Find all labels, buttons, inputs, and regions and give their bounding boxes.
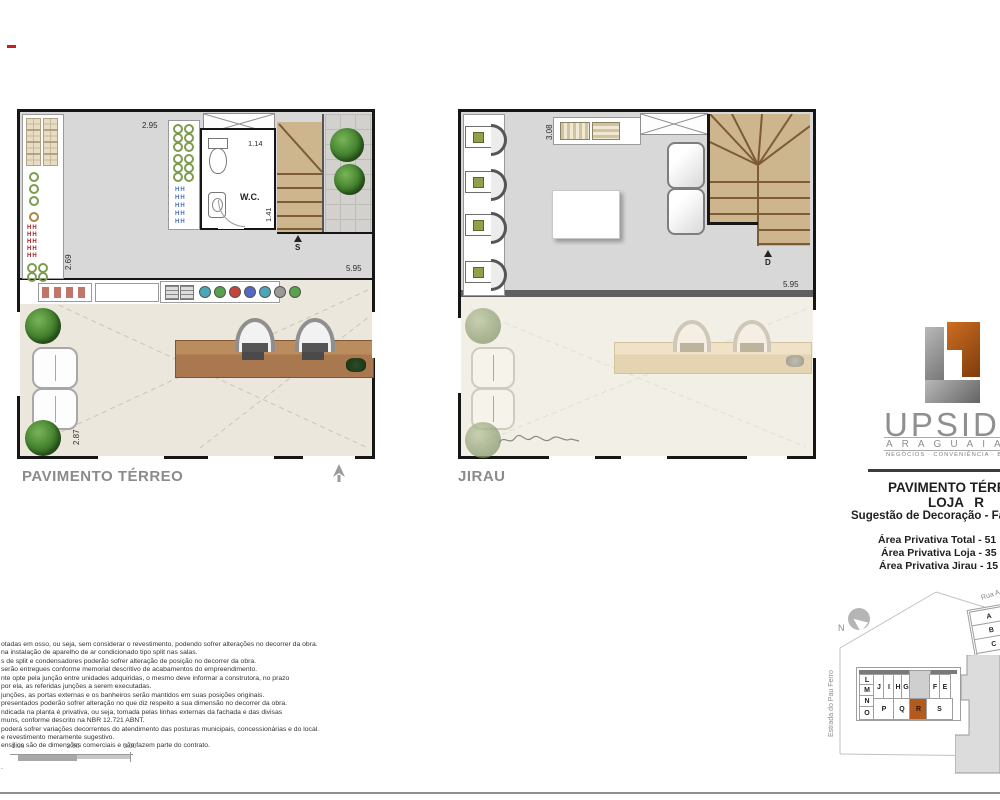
map-unit: P	[873, 698, 895, 720]
dim-right: 5.95	[346, 264, 362, 273]
storefront-opening	[303, 456, 355, 459]
tray-icon	[592, 122, 620, 140]
street-left-label: Estrada do Pau Ferro	[828, 670, 835, 737]
stove-burners	[42, 287, 88, 298]
stair-treads	[277, 122, 322, 232]
staircase-up	[277, 122, 322, 232]
box-icon	[26, 130, 41, 142]
red-registration-mark	[7, 45, 16, 48]
floorplan-jirau: 3.08 D 5.95	[458, 109, 816, 459]
disclaimer-line: na instalação de aparelho de ar condicio…	[1, 649, 561, 657]
countertop-item	[242, 352, 264, 360]
storage-shelf: HH HH HH HH HH	[22, 114, 64, 279]
scale-bar-segment	[77, 755, 130, 759]
shelf-mark-icon: HH	[27, 225, 38, 231]
disclaimer-line: junções, as portas externas e os banheir…	[1, 692, 561, 700]
counter-plant-icon	[346, 358, 366, 372]
glass-icon	[38, 272, 48, 282]
table-below	[471, 347, 515, 389]
stair-treads	[710, 114, 810, 246]
stair-terrace-wall	[322, 114, 324, 232]
dim-wc-width: 1.14	[248, 139, 263, 148]
glass-icon	[173, 172, 183, 182]
wall-unit-icon	[465, 261, 493, 283]
map-anchor-building	[955, 655, 1000, 775]
glass-icon	[29, 172, 39, 182]
unit-letter: Q	[899, 706, 904, 713]
glass-icon	[173, 142, 183, 152]
disclaimer-block: otadas em osso, ou seja, sem considerar …	[1, 641, 561, 751]
unit-letter: B	[988, 626, 994, 634]
center-table	[552, 190, 620, 239]
box-icon	[26, 118, 41, 130]
unit-letter: J	[877, 684, 881, 691]
box-icon	[43, 118, 58, 130]
tree-below-icon	[465, 308, 501, 344]
floorplan-pavimento-terreo: HH HH HH HH HH 2.95 HH HH HH HH HH	[17, 109, 375, 459]
armchair-icon	[667, 188, 705, 235]
logo-rule	[884, 450, 1000, 451]
shelf-mark-icon: HH	[175, 211, 186, 217]
disclaimer-line: otadas em osso, ou seja, sem considerar …	[1, 641, 561, 649]
shelf-mark-icon: HH	[175, 219, 186, 225]
stool-seat	[302, 343, 328, 352]
unit-letter: I	[888, 684, 890, 691]
stool-seat	[680, 343, 704, 352]
tree-icon	[25, 308, 61, 344]
unit-letter: E	[943, 684, 948, 691]
footer-rule	[0, 792, 1000, 794]
tree-below-icon	[465, 422, 501, 458]
box-icon	[43, 142, 58, 154]
opening	[747, 456, 787, 459]
disclaimer-footnote: .	[1, 764, 3, 772]
info-unit: LOJA R	[928, 495, 984, 510]
void-hatch	[640, 113, 708, 135]
logo-mark-horizontal	[925, 380, 980, 403]
tray-icon	[560, 122, 590, 140]
map-north-icon	[848, 608, 870, 630]
unit-letter: L	[865, 677, 869, 684]
logo-rule	[884, 437, 1000, 438]
box-icon	[43, 130, 58, 142]
map-void-cell	[909, 670, 931, 700]
opening	[549, 456, 595, 459]
wall-unit-icon	[465, 214, 493, 236]
north-arrow-icon	[330, 463, 348, 483]
box-icon	[43, 154, 58, 166]
dim-wc-depth: 1.41	[264, 207, 273, 222]
unit-knob	[473, 267, 484, 278]
bar-shelf: HH HH HH HH HH	[168, 120, 200, 230]
unit-letter: G	[903, 684, 908, 691]
disclaimer-line: ndicada na planta é privativa, ou seja, …	[1, 709, 561, 717]
north-needle	[850, 614, 868, 630]
decor-below-icon	[786, 355, 804, 367]
disclaimer-line: presentados poderão sofrer alteração no …	[1, 700, 561, 708]
shelf-mark-icon: HH	[175, 203, 186, 209]
glass-icon	[184, 172, 194, 182]
door-swing-arc	[218, 200, 245, 227]
stool-seat	[740, 343, 764, 352]
scale-label-3: 3.00	[124, 743, 137, 750]
stool-seat	[242, 343, 268, 352]
wc-room: W.C. 1.14 1.41	[200, 128, 276, 230]
dim-top: 2.95	[142, 121, 158, 130]
stair-bottom-wall	[707, 222, 758, 225]
dim-right: 5.95	[783, 280, 799, 289]
wall-unit-icon	[465, 171, 493, 193]
logo-mark-notch	[947, 350, 962, 377]
terrace-wall	[277, 232, 372, 234]
side-opening	[17, 312, 20, 396]
map-unit: S	[926, 698, 953, 720]
armchair-icon	[667, 142, 705, 189]
stair-up-arrow-icon	[294, 235, 302, 242]
box-icon	[26, 142, 41, 154]
storefront-opening	[208, 456, 274, 459]
lounge-table	[32, 347, 78, 389]
mezzanine-edge	[461, 290, 813, 297]
glass-icon	[184, 142, 194, 152]
glass-icon	[29, 196, 39, 206]
info-subtitle: Sugestão de Decoração - Fa	[851, 510, 1000, 522]
disclaimer-line: s de split e condensadores poderão sofre…	[1, 658, 561, 666]
signature-watermark	[497, 432, 581, 448]
disclaimer-line: muns, conforme descrito na NBR 12.721 AB…	[1, 717, 561, 725]
disclaimer-line: nte opte pela junção entre unidades adqu…	[1, 675, 561, 683]
unit-letter: C	[991, 640, 997, 648]
glass-icon	[29, 184, 39, 194]
map-building-strip: L M N O J I H G F E P Q R S	[856, 667, 961, 721]
side-opening	[372, 312, 375, 358]
unit-letter: R	[916, 706, 921, 713]
map-north-label: N	[838, 623, 845, 633]
stacked-boxes-icon	[165, 285, 179, 300]
unit-letter: A	[986, 612, 992, 620]
plates-counter	[160, 281, 280, 303]
shelf-mark-icon: HH	[27, 232, 38, 238]
map-unit: E	[939, 674, 951, 700]
plan-terreo-title: PAVIMENTO TÉRREO	[22, 468, 183, 485]
tree-icon	[25, 420, 61, 456]
countertop-item	[302, 352, 324, 360]
info-area-jirau: Área Privativa Jirau - 15	[879, 560, 998, 572]
unit-letter: H	[895, 684, 900, 691]
tree-icon	[330, 128, 364, 162]
wall-unit-icon	[465, 126, 493, 148]
scale-label-2: 2.00	[67, 743, 80, 750]
stacked-boxes-icon	[180, 285, 194, 300]
shelf-mark-icon: HH	[27, 246, 38, 252]
disclaimer-line: e revestimento meramente sugestivo.	[1, 734, 561, 742]
logo-tagline: NEGÓCIOS · CONVENIÊNCIA · BEM	[886, 452, 1000, 458]
unit-letter: P	[882, 706, 887, 713]
unit-letter: N	[864, 698, 869, 705]
info-area-total: Área Privativa Total - 51	[878, 534, 996, 546]
logo-brand: ARAGUAIA	[886, 439, 1000, 450]
opening	[621, 456, 667, 459]
info-area-loja: Área Privativa Loja - 35	[881, 547, 997, 559]
disclaimer-line: ensílios são de dimensões comerciais e n…	[1, 742, 561, 750]
plate-icons	[199, 286, 301, 298]
stair-direction-label: D	[765, 258, 771, 267]
unit-letter: M	[864, 687, 870, 694]
disclaimer-line: poderá sofrer variações decorrentes do a…	[1, 726, 561, 734]
dim-left: 2.69	[64, 254, 73, 270]
brochure-sheet: { "plans": { "terreo": { "label": "PAVIM…	[0, 0, 1000, 800]
side-opening	[458, 318, 461, 393]
stair-direction-label: S	[295, 243, 300, 252]
scale-bar-segment	[18, 755, 77, 761]
unit-knob	[473, 220, 484, 231]
scale-label-1: 1.00	[12, 743, 25, 750]
unit-letter: F	[933, 684, 937, 691]
disclaimer-line: serão entregues conforme memorial descri…	[1, 666, 561, 674]
stair-down-arrow-icon	[764, 250, 772, 257]
unit-knob	[473, 177, 484, 188]
shelf-mark-icon: HH	[175, 195, 186, 201]
shelf-mark-icon: HH	[27, 239, 38, 245]
sideboard	[553, 117, 641, 145]
prep-counter	[95, 283, 159, 302]
header-rule	[868, 469, 1000, 472]
glass-icon	[27, 272, 37, 282]
storefront-opening	[98, 456, 164, 459]
counter-below	[614, 342, 812, 374]
shelf-mark-icon: HH	[175, 187, 186, 193]
tree-icon	[334, 164, 365, 195]
shelf-mark-icon: HH	[27, 253, 38, 259]
side-opening	[813, 310, 816, 358]
stove-counter	[38, 283, 92, 302]
unit-knob	[473, 132, 484, 143]
scale-bar-tick	[130, 752, 131, 762]
bowl-icon	[29, 212, 39, 222]
plan-jirau-title: JIRAU	[458, 468, 506, 485]
unit-letter: S	[937, 706, 942, 713]
hatch-x	[641, 114, 707, 134]
dim-bottom: 2.87	[72, 429, 81, 445]
unit-letter: O	[864, 710, 869, 717]
info-title: PAVIMENTO TÉRREO	[888, 480, 1000, 495]
box-icon	[26, 154, 41, 166]
toilet-icon	[209, 148, 227, 174]
disclaimer-line: por ela, as referidas junções a serem ex…	[1, 683, 561, 691]
